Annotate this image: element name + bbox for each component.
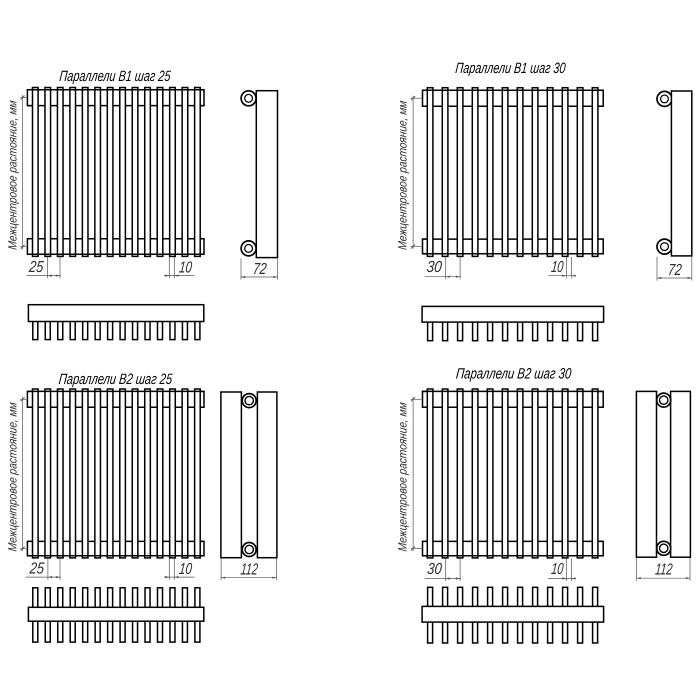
svg-text:Параллели В2 шаг 25: Параллели В2 шаг 25 — [58, 371, 174, 388]
svg-text:30: 30 — [426, 258, 443, 276]
svg-text:Параллели В2 шаг 30: Параллели В2 шаг 30 — [455, 366, 572, 383]
svg-text:30: 30 — [426, 560, 442, 578]
svg-text:10: 10 — [550, 560, 564, 578]
svg-text:Межцентровое растояние, мм: Межцентровое растояние, мм — [396, 401, 410, 552]
svg-text:112: 112 — [654, 561, 673, 579]
svg-text:Межцентровое растояние, мм: Межцентровое растояние, мм — [6, 99, 20, 250]
svg-text:10: 10 — [178, 259, 193, 277]
svg-text:Межцентровое растояние, мм: Межцентровое растояние, мм — [6, 401, 20, 552]
svg-text:72: 72 — [252, 260, 267, 278]
svg-text:25: 25 — [27, 258, 44, 276]
svg-text:25: 25 — [28, 560, 45, 578]
svg-text:Параллели В1 шаг 30: Параллели В1 шаг 30 — [455, 60, 567, 77]
svg-text:112: 112 — [240, 560, 259, 578]
svg-text:72: 72 — [667, 261, 682, 279]
svg-text:10: 10 — [550, 258, 564, 276]
svg-text:Параллели В1 шаг 25: Параллели В1 шаг 25 — [59, 68, 172, 85]
svg-text:10: 10 — [178, 560, 193, 578]
svg-text:Межцентровое растояние, мм: Межцентровое растояние, мм — [396, 99, 410, 250]
